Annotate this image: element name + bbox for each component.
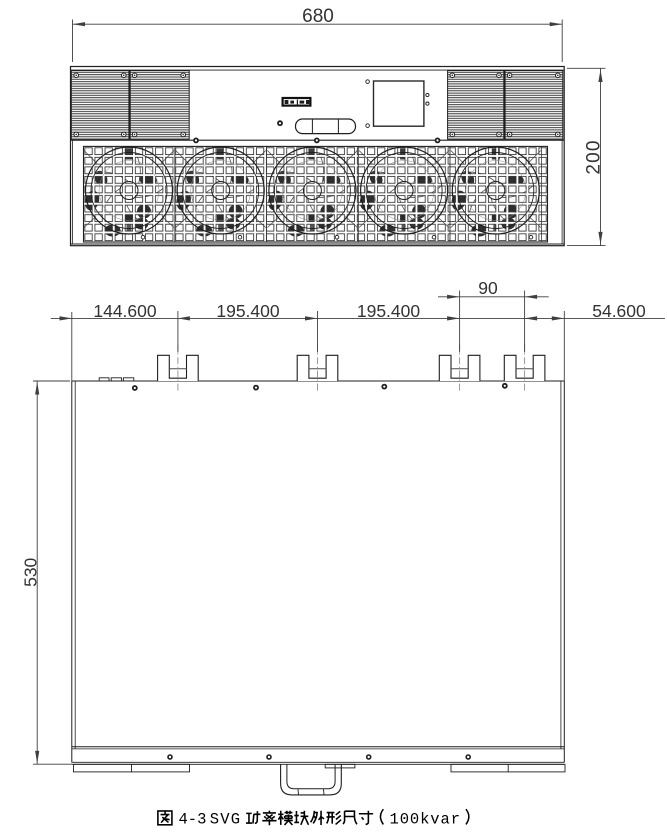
svg-text:90: 90 (478, 278, 498, 298)
svg-text:4-3: 4-3 (179, 811, 207, 829)
svg-text:200: 200 (583, 139, 604, 174)
svg-text:144.600: 144.600 (93, 301, 157, 321)
svg-text:54.600: 54.600 (592, 301, 646, 321)
svg-text:530: 530 (20, 557, 40, 586)
svg-text:SVG: SVG (210, 811, 242, 829)
svg-text:195.400: 195.400 (357, 301, 421, 321)
svg-text:195.400: 195.400 (216, 301, 280, 321)
svg-text:680: 680 (302, 6, 334, 27)
svg-text:100kvar: 100kvar (390, 811, 461, 829)
